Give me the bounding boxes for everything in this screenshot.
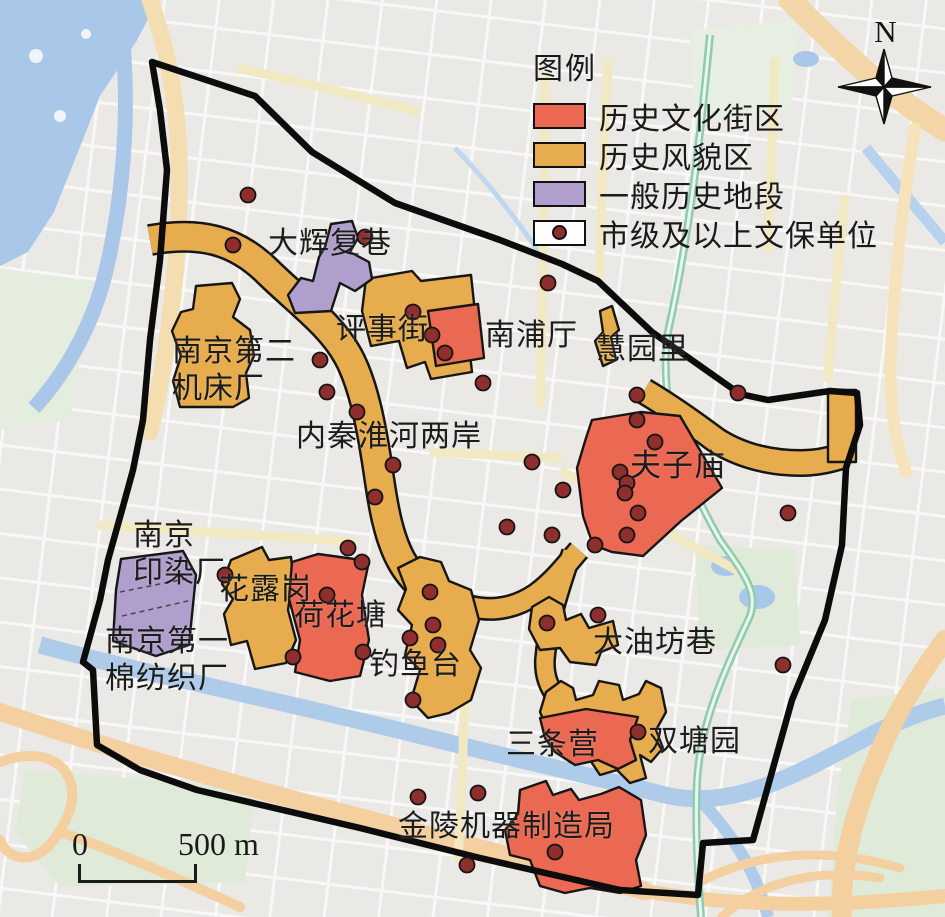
heritage-site-dot [540,616,555,631]
zone-nanjing-dyeing-factory [113,551,196,656]
heritage-site-dot [320,588,335,603]
heritage-site-dot [425,328,440,343]
heritage-site-dot [630,413,645,428]
legend-item: 历史文化街区 [533,102,878,129]
heritage-site-dot [541,276,556,291]
heritage-site-dot [545,528,560,543]
legend-items: 历史文化街区历史风貌区一般历史地段市级及以上文保单位 [533,102,878,246]
heritage-site-dot [476,376,491,391]
heritage-site-dot [525,455,540,470]
scale-zero-label: 0 [72,826,88,863]
heritage-site-dot [358,230,373,245]
heritage-site-dot [320,385,335,400]
heritage-site-dot [350,405,365,420]
heritage-site-dot [620,528,635,543]
compass-rose: N [828,14,943,134]
heritage-site-dot [648,435,663,450]
heritage-site-dot [591,608,606,623]
heritage-site-dot [368,490,383,505]
heritage-site-dot [500,520,515,535]
legend-label: 历史风貌区 [599,133,754,177]
scale-distance-label: 500 m [178,826,259,863]
heritage-site-dot [556,483,571,498]
heritage-site-dot [438,346,453,361]
heritage-site-dot [426,618,441,633]
heritage-site-dot [286,650,301,665]
legend-swatch-general_historic [533,181,586,207]
heritage-site-dot [630,388,645,403]
heritage-site-dot [776,658,791,673]
heritage-site-dot [460,858,475,873]
legend-label: 市级及以上文保单位 [599,211,878,255]
legend-swatch-historic_block [533,103,586,129]
heritage-site-dot [241,188,256,203]
legend-swatch-heritage_dot [533,220,586,246]
heritage-site-dot [423,585,438,600]
legend: 图例 历史文化街区历史风貌区一般历史地段市级及以上文保单位 [533,44,878,258]
heritage-site-dot [218,568,233,583]
legend-item: 市级及以上文保单位 [533,219,878,246]
legend-item: 一般历史地段 [533,180,878,207]
heritage-site-dot [355,555,370,570]
heritage-site-dot [406,693,421,708]
historic-districts-map: 大辉复巷南京第二 机床厂评事街南浦厅慧园里内秦淮河两岸夫子庙南京 印染厂花露岗荷… [0,0,945,917]
heritage-site-dot [781,506,796,521]
zone-hehuatang [289,554,369,681]
legend-title: 图例 [533,44,878,88]
heritage-site-dot [548,845,563,860]
heritage-site-dot [226,238,241,253]
legend-item: 历史风貌区 [533,141,878,168]
heritage-site-dot [631,506,646,521]
heritage-site-dot [471,786,486,801]
heritage-site-dot [631,725,646,740]
heritage-site-dot [731,386,746,401]
heritage-site-dot [431,638,446,653]
heritage-site-dot [618,486,633,501]
scale-bar: 0 500 m [58,826,278,888]
scale-bar-bracket [78,864,197,883]
heritage-site-dot [313,353,328,368]
heritage-site-dot [386,458,401,473]
legend-swatch-historic_style [533,142,586,168]
compass-star-icon [828,14,943,134]
heritage-site-dot [588,538,603,553]
heritage-dot-icon [552,225,567,240]
heritage-site-dot [403,631,418,646]
legend-label: 历史文化街区 [599,94,785,138]
heritage-site-dot [406,305,421,320]
heritage-site-dot [356,645,371,660]
legend-label: 一般历史地段 [599,172,785,216]
heritage-site-dot [341,541,356,556]
heritage-site-dot [411,790,426,805]
